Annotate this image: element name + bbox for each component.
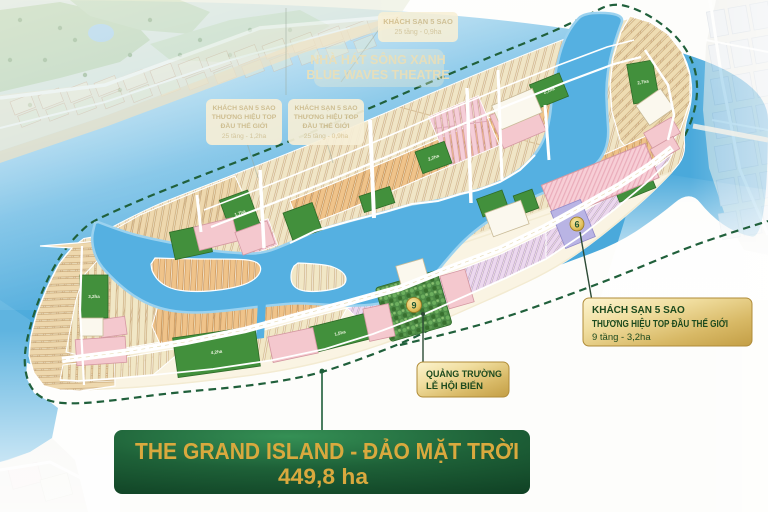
svg-text:25 tầng - 1,2ha: 25 tầng - 1,2ha [222, 131, 267, 140]
svg-text:KHÁCH SẠN 5 SAO: KHÁCH SẠN 5 SAO [294, 103, 357, 112]
svg-text:9 tầng - 3,2ha: 9 tầng - 3,2ha [592, 332, 651, 343]
svg-text:THE GRAND ISLAND - ĐẢO MẶT TRỜ: THE GRAND ISLAND - ĐẢO MẶT TRỜI [135, 436, 519, 464]
svg-text:9: 9 [411, 301, 416, 311]
svg-text:LỄ HỘI BIỂN: LỄ HỘI BIỂN [426, 380, 483, 392]
svg-text:25 tầng - 0,9ha: 25 tầng - 0,9ha [394, 27, 441, 36]
svg-text:KHÁCH SẠN 5 SAO: KHÁCH SẠN 5 SAO [383, 17, 453, 26]
svg-text:NHÀ HÁT SÔNG XANH: NHÀ HÁT SÔNG XANH [310, 52, 445, 67]
svg-text:THƯƠNG HIỆU TOP: THƯƠNG HIỆU TOP [212, 112, 277, 121]
svg-text:KHÁCH SẠN 5 SAO: KHÁCH SẠN 5 SAO [212, 103, 275, 112]
svg-text:6: 6 [574, 220, 579, 230]
svg-text:25 tầng - 0,9ha: 25 tầng - 0,9ha [304, 131, 349, 140]
svg-text:THƯƠNG HIỆU TOP ĐẦU THẾ GIỚI: THƯƠNG HIỆU TOP ĐẦU THẾ GIỚI [592, 317, 728, 330]
svg-text:THƯƠNG HIỆU TOP: THƯƠNG HIỆU TOP [294, 112, 359, 121]
svg-text:QUẢNG TRƯỜNG: QUẢNG TRƯỜNG [426, 368, 502, 380]
svg-text:BLUE WAVES THEATRE: BLUE WAVES THEATRE [306, 68, 449, 82]
svg-text:KHÁCH SẠN 5 SAO: KHÁCH SẠN 5 SAO [592, 303, 685, 316]
svg-text:449,8 ha: 449,8 ha [278, 464, 369, 489]
svg-text:3,2ha: 3,2ha [88, 294, 100, 299]
